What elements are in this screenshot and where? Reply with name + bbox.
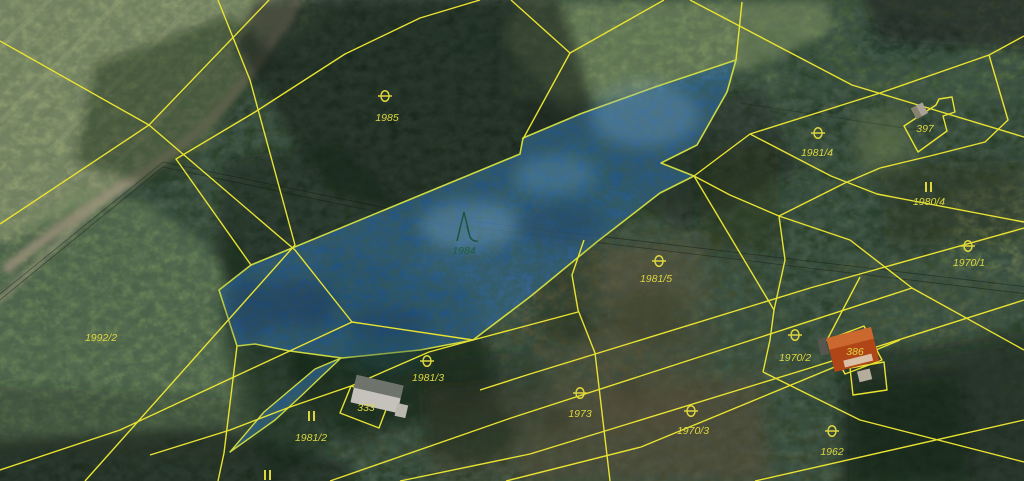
svg-text:1981/5: 1981/5 — [640, 273, 672, 285]
svg-text:1992/2: 1992/2 — [85, 332, 117, 344]
svg-text:1981/4: 1981/4 — [801, 147, 833, 159]
svg-text:1962: 1962 — [820, 446, 844, 458]
svg-text:397: 397 — [916, 123, 935, 135]
svg-text:1970/2: 1970/2 — [779, 352, 811, 364]
svg-text:1981/2: 1981/2 — [295, 432, 327, 444]
svg-text:1970/3: 1970/3 — [677, 425, 709, 437]
svg-text:1981/3: 1981/3 — [412, 372, 444, 384]
svg-text:1985: 1985 — [375, 112, 399, 124]
svg-text:1970/1: 1970/1 — [953, 257, 985, 269]
svg-text:1984: 1984 — [452, 245, 476, 257]
svg-text:386: 386 — [846, 346, 864, 358]
svg-text:333: 333 — [357, 402, 375, 414]
svg-text:1973: 1973 — [568, 408, 592, 420]
svg-text:1980/4: 1980/4 — [913, 196, 945, 208]
